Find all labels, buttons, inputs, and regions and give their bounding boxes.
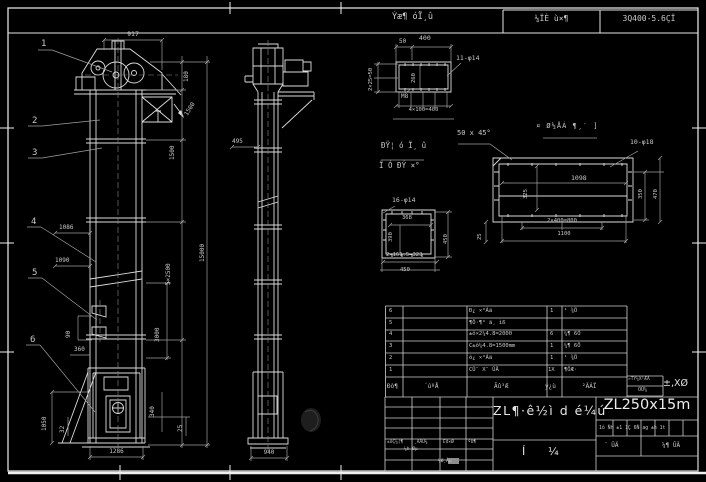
dim-15000: 15000 [200,244,206,262]
dim-25-front: 25 [178,425,184,432]
bom-row-no: 4 [389,332,392,338]
bom-header-name: Ãû³Æ [494,384,508,390]
dim-368: 368 [402,216,412,222]
chamfer-note: 50 x 45° [457,130,491,137]
dim-325: 325 [524,189,530,199]
ratio-note-top: Ýæ¶ óÏ¸û [392,13,433,22]
callout-10-phi18: 10-φ18 [630,139,653,146]
balloon-2: 2 [32,117,37,126]
dimension-lines [26,38,664,461]
dim-1098: 1098 [571,175,587,182]
dim-350: 350 [639,189,645,199]
top-field-right: 3Q400-5.6ÇÏ [600,15,698,23]
dim-2x400: 2×400=800 [522,219,602,225]
bom-row-no: 6 [389,309,392,315]
bom-row-name: Ð¿ ×°Áä [469,309,492,315]
drawing-title: ZL¶·ê½ì d é¼ú [493,405,596,418]
bom-header-material: ²ÄÁÏ [582,384,596,390]
std-box-bottom: ÕÛ¼ [638,388,647,393]
dim-940: 940 [251,450,287,456]
bom-row-material: ¼¶ 6Ö [564,344,581,350]
bom-row-name: ¶Ô·¶° ä¸ ìß [469,321,505,327]
approval-mark: ±,XØ [663,379,688,389]
dim-180: 180 [184,71,190,82]
dim-390: 390 [389,232,395,242]
dim-32: 32 [60,426,66,433]
dim-5x2500: 5×2500 [166,263,172,285]
sig-label: ¸ÄÅÛ¼ [414,441,428,446]
bom-row-name: CÛ¨ X¨ ÛÄ [469,368,499,374]
bom-row-name: C±ô¼4.8=1500mm [469,344,515,350]
note-line2: Ï Ó ÐÝ ×° [379,162,420,170]
balloon-3: 3 [32,149,37,158]
balloon-1: 1 [41,40,46,49]
sig-label: Êð×Ø [443,441,454,446]
bom-row-qty: 1 [550,344,553,350]
dim-3000: 3000 [155,328,161,342]
bom-row-no: 1 [389,368,392,374]
note-line1: ÐŸ¦ ó Ï¸ û [381,142,426,150]
dim-2x161: 2×161.5=323 [386,253,422,259]
dim-360: 360 [74,347,85,353]
bom-row-material: ¹ ¾Ö [564,356,577,362]
balloon-5: 5 [32,269,37,278]
bom-header-qty: ý¿ù [545,384,556,390]
bom-row-qty: 6 [550,332,553,338]
dim-1086: 1086 [59,225,73,231]
bom-row-no: 5 [389,321,392,327]
label-m8: M8 [401,94,408,100]
balloon-6: 6 [30,336,35,345]
dim-917: 917 [104,31,162,38]
bom-row-no: 3 [389,344,392,350]
title-cell-right: ¼¶ ÛÄ [662,443,680,449]
dim-90: 90 [66,331,72,338]
bom-header-code: ´úºÅ [424,384,438,390]
detail-long-title: ¤ Ø½ÅÁ ¶¸′ ] [536,123,599,130]
dim-1286: 1286 [90,449,143,455]
dim-470: 470 [654,189,660,199]
bom-row-name: ±ô×2¼4.8=2000 [469,332,512,338]
std-box-top: »TÝ¼X¹ÆÅ [628,378,650,383]
sig-row2: ¼h Øµ [404,448,418,453]
sig-label: ±ôÇ¼(¶ [387,441,403,446]
dim-1090: 1090 [55,258,69,264]
bom-row-qty: 1X [548,368,555,374]
dim-450-right: 450 [444,234,450,244]
callout-11-phi14: 11-φ14 [456,55,479,62]
dim-1100: 1100 [502,232,626,238]
dim-1500: 1500 [170,146,176,160]
dim-340: 340 [150,406,156,417]
bom-row-no: 2 [389,356,392,362]
dim-4x100: 4×100=400 [396,108,451,114]
front-view-geometry [58,41,184,447]
dim-495: 495 [232,139,243,145]
ratio-note-bottom: 400 [419,35,431,42]
bom-row-material: ¹ ¾Ö [564,309,577,315]
sheet-info-row: 1ô Ñh ±1 1Ç 6Ñ ag ±h 1t [599,427,665,432]
sig-row3: ¼Ø¸Åµ [438,460,452,465]
balloon-4: 4 [31,218,36,227]
title-cell-left: ¨ ÛÄ [604,443,618,449]
sig-label: ºÛ¶ [468,441,476,446]
bom-row-material: ¼¶ 6Ö [564,332,581,338]
bom-row-qty: 1 [550,309,553,315]
bom-row-qty: 1 [550,356,553,362]
dim-2x25: 2×25=50 [369,68,375,91]
dim-25-long: 25 [478,233,484,240]
dim-1050: 1050 [42,417,48,431]
dim-450-bottom: 450 [400,268,410,274]
bom-row-material: ¶ÖÆ· [564,368,577,374]
model-number: ZL250x15m [597,398,697,413]
bom-row-name: ô¿ ×°Áä [469,356,492,362]
drawing-subtitle-char2: ¼ [548,446,559,457]
drawing-subtitle-char1: Í [522,446,525,457]
callout-16-phi14: 16-φ14 [392,197,415,204]
side-view-geometry [245,44,314,448]
dim-260: 260 [412,73,418,83]
bom-header-no: Ðò¶ [387,384,398,390]
balloon-leader-lines [26,50,112,412]
dim-50: 50 [399,39,406,45]
cad-drawing-sheet: Ýæ¶ óÏ¸û 400 ¼ÏÈ ù×¶ 3Q400-5.6ÇÏ 1 2 3 4… [0,0,706,482]
top-field-mid: ¼ÏÈ ù×¶ [503,15,600,23]
